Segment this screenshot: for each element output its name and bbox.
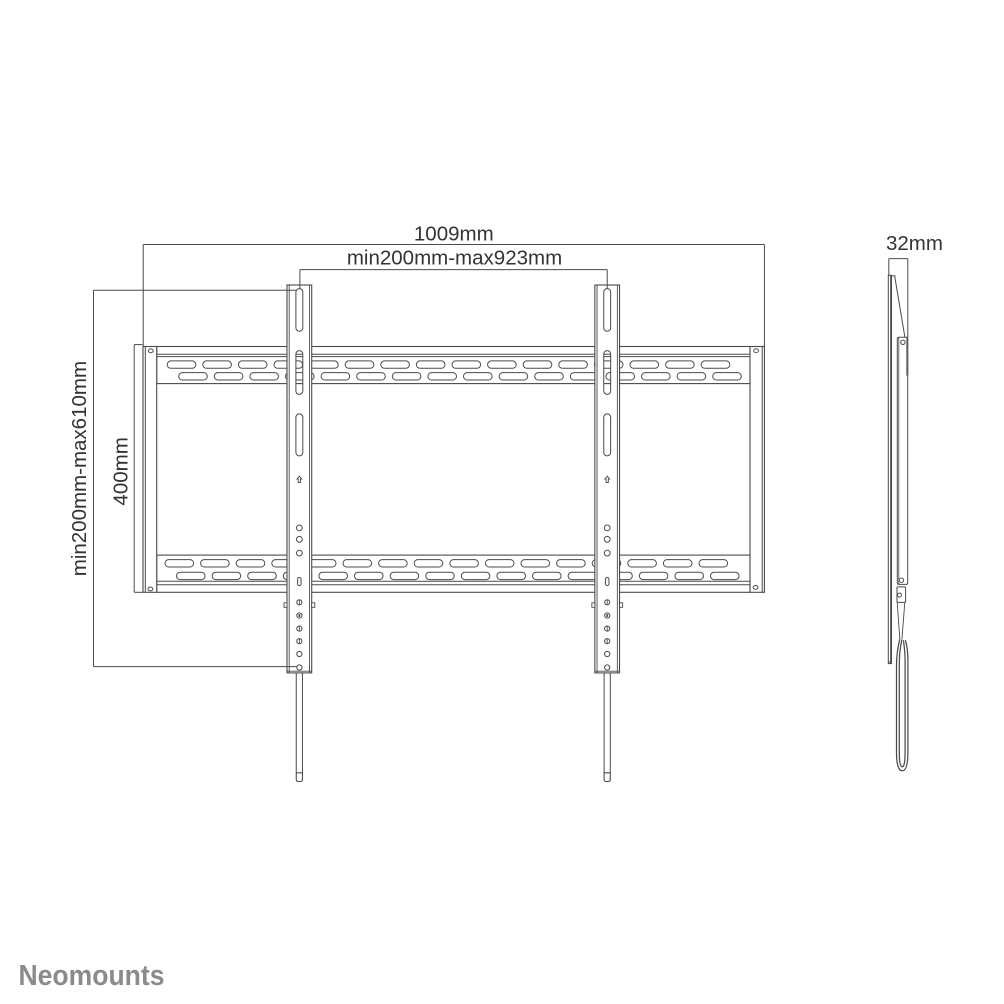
- svg-text:1009mm: 1009mm: [414, 223, 494, 246]
- svg-text:32mm: 32mm: [886, 232, 943, 255]
- svg-text:min200mm-max923mm: min200mm-max923mm: [347, 246, 562, 269]
- svg-text:Neomounts: Neomounts: [19, 960, 165, 992]
- svg-text:400mm: 400mm: [110, 437, 133, 505]
- svg-text:min200mm-max610mm: min200mm-max610mm: [68, 361, 91, 576]
